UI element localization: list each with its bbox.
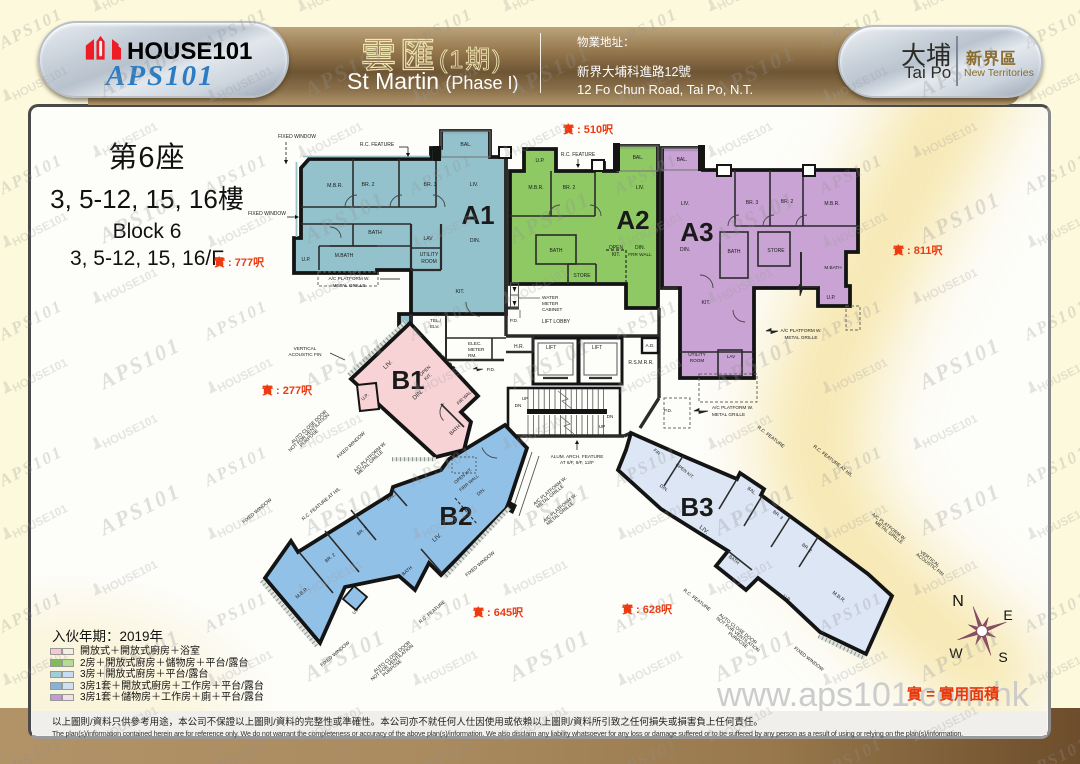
svg-text:METAL GRILLE: METAL GRILLE xyxy=(784,335,817,340)
svg-text:B3: B3 xyxy=(680,492,713,522)
svg-text:BATH: BATH xyxy=(368,230,382,236)
svg-text:METER: METER xyxy=(542,301,559,306)
svg-text:BAL.: BAL. xyxy=(677,157,688,163)
svg-text:U.P.: U.P. xyxy=(826,295,835,301)
svg-text:B2: B2 xyxy=(439,501,472,531)
svg-text:A/C PLATFORM W.: A/C PLATFORM W. xyxy=(870,512,907,543)
svg-text:M.B.R.: M.B.R. xyxy=(327,183,343,189)
svg-text:B1: B1 xyxy=(391,365,424,395)
svg-text:UP: UP xyxy=(522,396,529,401)
svg-text:BR. 3: BR. 3 xyxy=(424,182,437,188)
svg-text:U.P.: U.P. xyxy=(535,158,544,164)
svg-text:DIN.: DIN. xyxy=(635,245,645,251)
svg-text:R.C. FEATURE AT H/L: R.C. FEATURE AT H/L xyxy=(812,444,854,479)
svg-text:R.C. FEATURE AT H/L: R.C. FEATURE AT H/L xyxy=(301,486,342,522)
svg-text:A1: A1 xyxy=(461,200,494,230)
svg-text:LIV.: LIV. xyxy=(636,185,645,191)
svg-text:A2: A2 xyxy=(616,205,649,235)
svg-text:LAV: LAV xyxy=(727,354,736,359)
svg-text:KIT.: KIT. xyxy=(702,300,711,306)
svg-text:A/C PLATFORM W.: A/C PLATFORM W. xyxy=(353,441,388,474)
svg-text:DIN.: DIN. xyxy=(470,238,480,244)
svg-text:CABINET: CABINET xyxy=(542,307,562,312)
svg-text:BR. 2: BR. 2 xyxy=(781,199,794,205)
svg-text:METAL GRILLE: METAL GRILLE xyxy=(712,412,745,417)
svg-text:R.C. FEATURE: R.C. FEATURE xyxy=(360,142,395,148)
svg-text:H.R.: H.R. xyxy=(514,344,524,350)
svg-text:NOT FOR VENTILATION: NOT FOR VENTILATION xyxy=(288,412,332,454)
svg-text:P.D.: P.D. xyxy=(487,367,496,372)
svg-text:A/C PLATFORM W.: A/C PLATFORM W. xyxy=(780,328,821,333)
svg-text:R.C. FEATURE: R.C. FEATURE xyxy=(418,599,447,625)
svg-text:LIFT: LIFT xyxy=(546,345,556,351)
svg-text:OPEN: OPEN xyxy=(609,245,624,251)
svg-text:DN: DN xyxy=(607,414,614,419)
svg-text:LIV.: LIV. xyxy=(681,201,690,207)
svg-text:S: S xyxy=(998,649,1007,665)
svg-text:A3: A3 xyxy=(680,217,713,247)
svg-text:LIFT: LIFT xyxy=(592,345,602,351)
svg-text:AT 6/F, 9/F, 12/F: AT 6/F, 9/F, 12/F xyxy=(560,460,594,465)
svg-text:WATER: WATER xyxy=(542,295,559,300)
svg-text:BR. 3: BR. 3 xyxy=(746,200,759,206)
svg-text:FIXED WINDOW: FIXED WINDOW xyxy=(792,646,825,673)
svg-text:UTILITY: UTILITY xyxy=(688,352,706,357)
svg-text:FIXED WINDOW: FIXED WINDOW xyxy=(241,497,273,525)
svg-text:W: W xyxy=(949,645,963,661)
svg-text:M.B.R.: M.B.R. xyxy=(824,201,839,207)
svg-text:UP: UP xyxy=(599,424,606,429)
svg-text:DN: DN xyxy=(515,403,522,408)
svg-text:FIXED WINDOW: FIXED WINDOW xyxy=(464,550,496,578)
svg-text:VERTICAL: VERTICAL xyxy=(294,346,317,351)
svg-text:A/C PLATFORM W.: A/C PLATFORM W. xyxy=(712,405,753,410)
svg-text:KIT.: KIT. xyxy=(456,289,465,295)
svg-text:R.C. FEATURE: R.C. FEATURE xyxy=(561,152,596,158)
svg-text:STORE: STORE xyxy=(767,248,785,254)
svg-text:BATH: BATH xyxy=(550,248,563,254)
svg-text:P.D.: P.D. xyxy=(664,408,673,413)
svg-text:FIXED WINDOW: FIXED WINDOW xyxy=(336,430,367,460)
svg-text:R.C. FEATURE: R.C. FEATURE xyxy=(756,425,786,450)
svg-text:NOT FOR VENTILATION: NOT FOR VENTILATION xyxy=(370,643,416,683)
svg-text:NOT FOR VENTILATION: NOT FOR VENTILATION xyxy=(715,616,762,654)
svg-text:M.BATH: M.BATH xyxy=(824,265,841,270)
svg-text:TEL./: TEL./ xyxy=(430,318,442,323)
svg-text:UTILITY: UTILITY xyxy=(420,252,439,258)
svg-text:STORE: STORE xyxy=(573,273,591,279)
svg-text:BAL.: BAL. xyxy=(633,155,644,161)
svg-text:A/C PLATFORM W.: A/C PLATFORM W. xyxy=(328,276,369,281)
svg-text:FIXED WINDOW: FIXED WINDOW xyxy=(319,640,351,668)
svg-text:ELV.: ELV. xyxy=(430,324,439,329)
svg-text:R.C. FEATURE: R.C. FEATURE xyxy=(682,588,712,613)
svg-text:BATH: BATH xyxy=(728,249,741,255)
svg-text:R.S.M.R.R.: R.S.M.R.R. xyxy=(628,360,653,366)
svg-text:LAV: LAV xyxy=(423,236,433,242)
svg-text:ELEC.: ELEC. xyxy=(468,341,482,346)
svg-text:BAL.: BAL. xyxy=(460,142,471,148)
svg-text:KIT.: KIT. xyxy=(612,252,621,258)
svg-text:METER: METER xyxy=(468,347,485,352)
svg-text:M.B.R.: M.B.R. xyxy=(528,185,543,191)
svg-text:FIXED WINDOW: FIXED WINDOW xyxy=(278,134,316,140)
svg-text:BR. 2: BR. 2 xyxy=(563,185,576,191)
svg-text:RM.: RM. xyxy=(468,353,477,358)
svg-text:P.D.: P.D. xyxy=(510,318,519,323)
svg-text:LIV.: LIV. xyxy=(470,182,479,188)
svg-text:ROOM: ROOM xyxy=(690,358,705,363)
svg-text:M.BATH: M.BATH xyxy=(335,253,354,259)
svg-text:E: E xyxy=(1003,607,1012,623)
svg-text:ALUM. ARCH. FEATURE: ALUM. ARCH. FEATURE xyxy=(551,454,604,459)
svg-text:N: N xyxy=(952,593,964,610)
svg-text:A.D.: A.D. xyxy=(645,343,654,348)
svg-text:ROOM: ROOM xyxy=(421,259,437,265)
svg-text:ACOUSTIC FIN: ACOUSTIC FIN xyxy=(288,352,321,357)
svg-text:U.P.: U.P. xyxy=(301,257,310,263)
svg-text:FRR WALL: FRR WALL xyxy=(628,252,652,257)
svg-text:LIFT LOBBY: LIFT LOBBY xyxy=(542,319,571,325)
svg-text:BR. 2: BR. 2 xyxy=(362,182,375,188)
svg-text:METAL GRILLE: METAL GRILLE xyxy=(332,283,365,288)
svg-text:DIN.: DIN. xyxy=(680,247,690,253)
